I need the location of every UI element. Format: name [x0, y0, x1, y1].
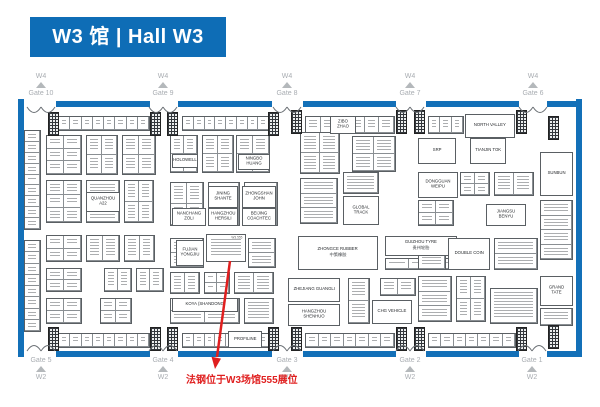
booth-name: JIANGSU BENYU: [490, 210, 522, 220]
booth-block: [490, 288, 538, 324]
booth-cell: [184, 136, 197, 154]
door-frame-icon: [48, 112, 59, 136]
gate-direction-label: W2: [388, 373, 432, 382]
booth-block: [46, 235, 82, 262]
exhibitor-booth: TIANJIN TOK: [470, 138, 506, 164]
hall-wall: [426, 351, 519, 357]
booth-cell: [25, 264, 40, 275]
door-frame-icon: [548, 325, 559, 349]
exhibitor-booth: QUANZHOU A22: [86, 192, 120, 212]
booth-block: [352, 136, 396, 172]
gate-direction-label: W2: [141, 373, 185, 382]
booth-cell: [47, 249, 64, 262]
floor-plan: W4Gate 10W4Gate 9W4Gate 8W4Gate 7W4Gate …: [0, 0, 600, 407]
booth-cell: [87, 236, 103, 261]
booth-block: [124, 235, 155, 262]
booth-cell: [374, 154, 395, 171]
booth-cell: [47, 236, 64, 249]
booth-cell: [194, 117, 205, 130]
booth-name: SRP: [433, 149, 442, 154]
booth-cell: [205, 334, 216, 347]
booth-cell: [127, 334, 138, 347]
gate-direction-label: W2: [19, 373, 63, 382]
booth-cell: [379, 117, 394, 133]
booth-block: [300, 178, 338, 224]
booth-cell: [47, 208, 64, 222]
booth-cell: [25, 297, 40, 308]
booth-cell: [47, 280, 64, 291]
booth-name: SUNBUN: [548, 172, 566, 177]
exhibitor-booth: ZHONGCE RUBBER中策橡胶: [298, 236, 378, 270]
booth-cell: [59, 334, 70, 347]
exhibitor-booth: CHG VEHICLE: [372, 300, 412, 324]
booth-cell: [137, 269, 150, 291]
booth-block: [46, 298, 82, 324]
door-frame-icon: [516, 327, 527, 351]
booth-name: NINGBO HUANG: [241, 157, 267, 167]
booth-cell: [203, 154, 218, 172]
booth-name: GRAND TATE: [543, 286, 569, 296]
booth-block: [494, 172, 534, 196]
booth-cell: [457, 277, 471, 299]
gate-label: Gate 8: [265, 89, 309, 98]
booth-cell: [331, 334, 344, 347]
booth-cell: [116, 299, 131, 311]
annotation-text: 法钢位于W3场馆555展位: [186, 371, 298, 386]
booth-cell: [381, 279, 398, 295]
booth-cell: [419, 254, 445, 269]
booth-cell: [452, 117, 463, 133]
booth-name-cn: 贵州轮胎: [412, 246, 429, 251]
booth-block: [300, 132, 340, 174]
booth-cell: [475, 184, 489, 195]
booth-cell: [82, 334, 93, 347]
booth-cell: [419, 292, 451, 307]
booth-cell: [104, 117, 115, 130]
booth-cell: [47, 136, 64, 149]
booth-cell: [461, 173, 475, 184]
booth-cell: [183, 117, 194, 130]
booth-name: ZHEJIANG GUANGLI: [293, 288, 334, 293]
door-frame-icon: [516, 110, 527, 134]
booth-block: [248, 238, 276, 268]
booth-cell: [249, 239, 275, 253]
booth-cell: [381, 334, 394, 347]
booth-cell: [64, 208, 81, 222]
booth-block: [170, 272, 200, 294]
booth-block: [104, 268, 132, 292]
door-frame-icon: [167, 327, 178, 351]
booth-name: BEIJING COACHTEC: [245, 212, 272, 222]
booth-cell: [127, 117, 138, 130]
booth-cell: [104, 334, 115, 347]
booth-cell: [320, 153, 339, 173]
booth-cell: [353, 137, 374, 154]
exhibitor-booth: DONGGUAN WEIPU: [418, 172, 458, 198]
booth-cell: [25, 286, 40, 297]
booth-cell: [138, 117, 149, 130]
booth-cell: [64, 161, 81, 174]
booth-cell: [205, 273, 217, 283]
exhibitor-booth: ZHONGSHAN JOHN: [242, 186, 276, 208]
gate-label: Gate 4: [141, 356, 185, 365]
booth-cell: [47, 195, 64, 209]
booth-cell: [116, 311, 131, 323]
gate-direction-label: W4: [141, 72, 185, 81]
booth-cell: [25, 241, 40, 252]
booth-cell: [374, 137, 395, 154]
booth-cell: [102, 136, 117, 155]
exhibitor-booth: KOYA (SHANDONG): [172, 298, 238, 312]
gate-label: Gate 2: [388, 356, 432, 365]
gate-marker: W4Gate 6: [511, 72, 555, 98]
booth-cell: [398, 279, 415, 295]
booth-cell: [25, 164, 40, 175]
booth-cell: [25, 185, 40, 196]
booth-cell: [70, 117, 81, 130]
booth-cell: [306, 117, 321, 133]
gate-label: Gate 9: [141, 89, 185, 98]
booth-cell: [301, 208, 337, 223]
booth-cell: [47, 269, 64, 280]
booth-cell: [441, 334, 453, 347]
booth-cell: [344, 334, 357, 347]
gate-arrow-icon: [158, 366, 168, 372]
hall-wall: [178, 101, 272, 107]
booth-cell: [87, 136, 102, 155]
gate-label: Gate 10: [19, 89, 63, 98]
door-frame-icon: [268, 112, 279, 136]
booth-cell: [171, 311, 205, 323]
booth-cell: [47, 161, 64, 174]
exhibitor-booth: SUNBUN: [540, 152, 573, 196]
booth-block: [234, 272, 274, 294]
exhibitor-booth: NANCHANG ZOLI: [172, 208, 206, 226]
booth-cell: [82, 117, 93, 130]
booth-cell: [419, 201, 436, 213]
booth-cell: [495, 254, 537, 269]
booth-cell: [495, 173, 514, 195]
exhibitor-booth: SRP: [418, 138, 456, 164]
booth-cell: [185, 273, 199, 293]
booth-block: [86, 135, 118, 175]
exhibitor-booth: HOLOWELL: [172, 154, 198, 168]
booth-block: [418, 200, 454, 226]
booth-cell: [490, 334, 502, 347]
booth-cell: [118, 269, 131, 291]
hall-wall: [303, 101, 396, 107]
booth-cell: [64, 149, 81, 162]
door-frame-icon: [396, 327, 407, 351]
booth-block: [182, 116, 270, 131]
door-frame-icon: [48, 327, 59, 351]
booth-block: [24, 240, 41, 332]
booth-cell: [64, 280, 81, 291]
door-frame-icon: [548, 116, 559, 140]
booth-cell: [457, 299, 471, 321]
booth-cell: [47, 311, 64, 323]
booth-cell: [47, 149, 64, 162]
booth-cell: [101, 299, 116, 311]
gate-direction-label: W2: [510, 373, 554, 382]
booth-cell: [25, 218, 40, 229]
booth-block: [58, 333, 150, 348]
booth-cell: [123, 155, 139, 174]
booth-cell: [205, 283, 217, 293]
booth-cell: [64, 299, 81, 311]
gate-marker: Gate 1W2: [510, 356, 554, 382]
booth-cell: [59, 117, 70, 130]
booth-cell: [349, 301, 369, 323]
hall-wall: [576, 99, 582, 357]
booth-cell: [64, 311, 81, 323]
booth-block: [428, 116, 464, 134]
booth-cell: [25, 142, 40, 153]
booth-block: [46, 135, 82, 175]
door-frame-icon: [414, 110, 425, 134]
booth-cell: [25, 320, 40, 331]
booth-name: TIANJIN TOK: [475, 149, 501, 154]
gate-arrow-icon: [36, 366, 46, 372]
exhibitor-booth: HANGZHOU HERSILI: [208, 208, 238, 226]
booth-cell: [64, 181, 81, 195]
exhibitor-booth: PROFILINE: [228, 331, 262, 348]
booth-cell: [64, 136, 81, 149]
booth-cell: [253, 136, 269, 154]
booth-cell: [187, 183, 203, 204]
door-frame-icon: [150, 112, 161, 136]
booth-cell: [217, 273, 229, 283]
booth-cell: [25, 275, 40, 286]
booth-cell: [491, 289, 537, 323]
booth-block: [124, 180, 154, 223]
booth-block: [244, 298, 274, 324]
booth-cell: [475, 173, 489, 184]
booth-cell: [429, 334, 441, 347]
booth-block: [456, 276, 486, 322]
booth-name: DOUBLE COIN: [454, 252, 483, 257]
booth-block: [46, 180, 82, 223]
gate-arrow-icon: [527, 366, 537, 372]
gate-marker: W4Gate 7: [388, 72, 432, 98]
booth-name: HANGZHOU SHENHUO: [293, 310, 336, 320]
booth-cell: [440, 117, 451, 133]
booth-cell: [25, 309, 40, 320]
gate-direction-label: W4: [511, 72, 555, 81]
booth-cell: [125, 202, 139, 223]
exhibitor-booth: ZIBO ZHAO: [330, 116, 356, 134]
booth-cell: [349, 279, 369, 301]
exhibitor-booth: ZHEJIANG GUANGLI: [288, 278, 340, 302]
booth-cell: [171, 136, 184, 154]
gate-label: Gate 5: [19, 356, 63, 365]
booth-block: [58, 116, 150, 131]
booth-cell: [93, 117, 104, 130]
booth-cell: [64, 249, 81, 262]
booth-block: [380, 278, 416, 296]
booth-block: [460, 172, 490, 196]
booth-cell: [419, 277, 451, 292]
booth-cell: [25, 175, 40, 186]
booth-cell: [503, 334, 515, 347]
gate-arrow-icon: [36, 82, 46, 88]
booth-cell: [171, 183, 187, 204]
booth-cell: [218, 136, 233, 154]
exhibitor-booth: NORTH VALLEY: [465, 114, 515, 138]
booth-cell: [419, 213, 436, 225]
gate-arrow-icon: [528, 82, 538, 88]
booth-cell: [461, 184, 475, 195]
booth-name: PROFILINE: [234, 337, 256, 342]
door-frame-icon: [291, 327, 302, 351]
gate-direction-label: W4: [388, 72, 432, 81]
gate-marker: Gate 4W2: [141, 356, 185, 382]
gate-marker: W4Gate 10: [19, 72, 63, 98]
booth-cell: [70, 334, 81, 347]
booth-cell: [64, 269, 81, 280]
booth-name: GLOBAL TRACK: [347, 206, 376, 216]
door-frame-icon: [167, 112, 178, 136]
booth-cell: [344, 173, 378, 193]
gate-label: Gate 1: [510, 356, 554, 365]
door-frame-icon: [291, 110, 302, 134]
booth-cell: [217, 283, 229, 293]
booth-name: HOLOWELL: [173, 159, 197, 164]
booth-cell: [301, 133, 320, 153]
booth-name: KOYA (SHANDONG): [185, 303, 225, 308]
hall-wall: [56, 101, 150, 107]
booth-cell: [194, 334, 205, 347]
exhibitor-booth: BEIJING COACHTEC: [242, 208, 276, 226]
booth-block: [86, 235, 120, 262]
booth-cell: [25, 207, 40, 218]
booth-cell: [139, 136, 155, 155]
booth-cell: [226, 117, 237, 130]
door-frame-icon: [150, 327, 161, 351]
gate-arrow-icon: [282, 82, 292, 88]
booth-block: [136, 268, 164, 292]
booth-cell: [102, 155, 117, 174]
booth-cell: [386, 259, 409, 269]
booth-cell: [47, 181, 64, 195]
booth-cell: [93, 334, 104, 347]
booth-block: [202, 135, 234, 173]
gate-arrow-icon: [158, 82, 168, 88]
booth-cell: [306, 334, 319, 347]
gate-direction-label: W4: [265, 72, 309, 81]
booth-cell: [125, 181, 139, 202]
booth-cell: [115, 117, 126, 130]
booth-cell: [235, 273, 254, 293]
booth-cell: [101, 311, 116, 323]
booth-cell: [215, 117, 226, 130]
booth-cell: [25, 131, 40, 142]
booth-cell: [139, 202, 153, 223]
hall-wall: [56, 351, 150, 357]
gate-arrow-icon: [405, 82, 415, 88]
booth-cell: [25, 153, 40, 164]
booth-cell: [495, 239, 537, 254]
booth-cell: [115, 334, 126, 347]
booth-cell: [25, 196, 40, 207]
gate-marker: W4Gate 9: [141, 72, 185, 98]
booth-cell: [541, 230, 572, 245]
booth-block: [24, 130, 41, 230]
exhibitor-booth: NINGBO HUANG: [238, 154, 270, 170]
door-frame-icon: [268, 327, 279, 351]
booth-cell: [205, 311, 239, 323]
booth-name-cn: 中策橡胶: [329, 253, 346, 258]
gate-direction-label: W4: [19, 72, 63, 81]
booth-cell: [183, 334, 194, 347]
gate-marker: Gate 5W2: [19, 356, 63, 382]
door-frame-icon: [396, 110, 407, 134]
booth-cell: [429, 117, 440, 133]
exhibitor-booth: JIANGSU BENYU: [486, 204, 526, 226]
booth-cell: [419, 306, 451, 321]
booth-block: [540, 308, 573, 326]
booth-cell: [205, 117, 216, 130]
exhibitor-booth: DOUBLE COIN: [448, 238, 490, 270]
gate-arrow-icon: [405, 366, 415, 372]
floor-plan-page: { "header": { "title": "W3 馆 | Hall W3" …: [0, 0, 600, 407]
booth-name: FUJIAN YONGJIU: [179, 248, 201, 258]
booth-cell: [454, 334, 466, 347]
booth-cell: [237, 136, 253, 154]
booth-cell: [514, 173, 533, 195]
booth-cell: [471, 299, 485, 321]
booth-block: [418, 276, 452, 322]
gate-marker: W4Gate 8: [265, 72, 309, 98]
exhibitor-booth: GRAND TATE: [540, 276, 573, 306]
booth-cell: [541, 309, 572, 325]
booth-cell: [436, 213, 453, 225]
booth-cell: [140, 236, 155, 261]
booth-name: ZHONGSHAN JOHN: [245, 192, 272, 202]
booth-block: [204, 272, 230, 294]
booth-cell: [471, 277, 485, 299]
gate-label: Gate 3: [265, 356, 309, 365]
booth-block: [494, 238, 538, 270]
exhibitor-booth: FUJIAN YONGJIU: [176, 240, 204, 266]
exhibitor-booth: GLOBAL TRACK: [343, 196, 379, 225]
booth-cell: [105, 269, 118, 291]
booth-cell: [254, 273, 273, 293]
booth-cell: [123, 136, 139, 155]
booth-cell: [301, 179, 337, 194]
booth-cell: [301, 194, 337, 209]
booth-block: [46, 268, 82, 292]
booth-name: NANCHANG ZOLI: [175, 212, 202, 222]
booth-cell: [436, 201, 453, 213]
booth-cell: [301, 153, 320, 173]
booth-block: [428, 333, 516, 348]
booth-cell: [356, 334, 369, 347]
booth-cell: [248, 117, 259, 130]
booth-cell: [203, 136, 218, 154]
booth-name: QUANZHOU A22: [89, 197, 116, 207]
booth-name: DONGGUAN WEIPU: [422, 180, 454, 190]
booth-cell: [87, 155, 102, 174]
booth-cell: [353, 154, 374, 171]
booth-cell: [478, 334, 490, 347]
booth-cell: [541, 201, 572, 216]
booth-cell: [150, 269, 163, 291]
booth-cell: [466, 334, 478, 347]
booth-block: [540, 200, 573, 260]
hall-wall: [426, 101, 519, 107]
booth-block: [343, 172, 379, 194]
